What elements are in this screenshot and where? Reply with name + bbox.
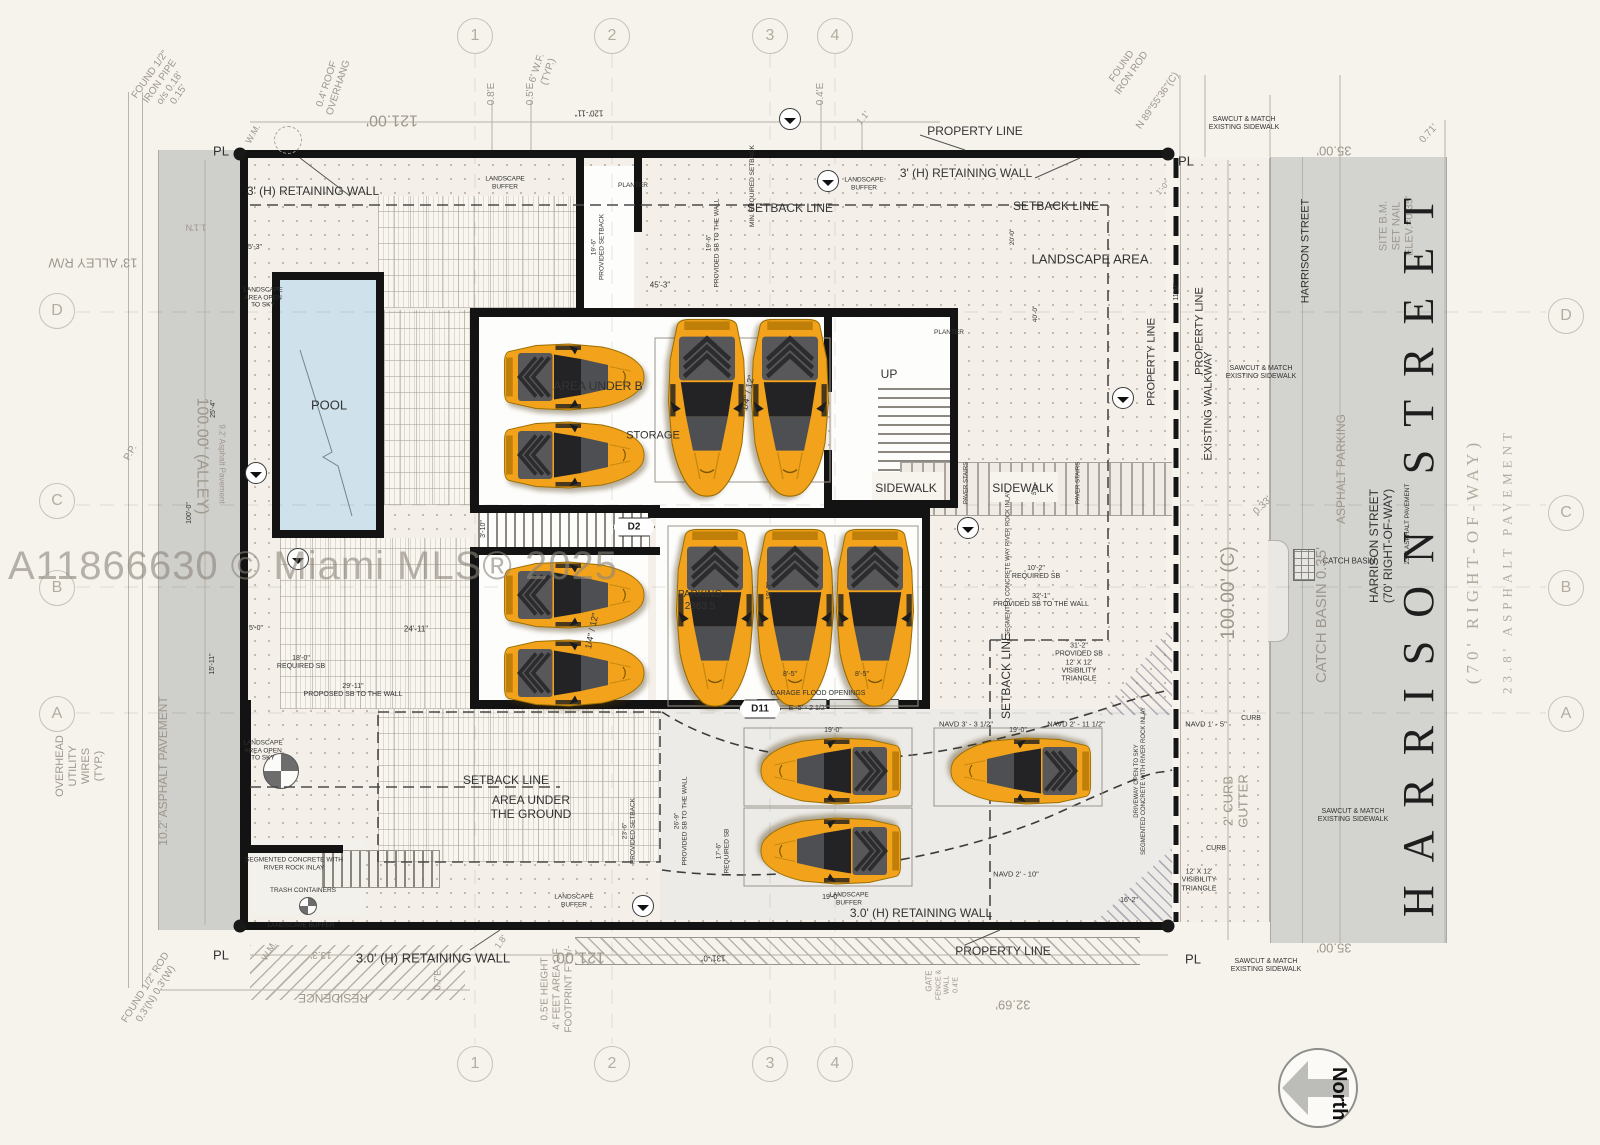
grid-bubble-bottom-3: 3 bbox=[752, 1046, 788, 1082]
label-minreq: MIN. REQUIRED SETBACK bbox=[749, 145, 757, 227]
label-hnote: 0.5'E HEIGHT 4' FEET AREA OF FOOTPRINT F… bbox=[539, 945, 574, 1032]
label-parking: PARKING 2383.5 bbox=[678, 589, 722, 613]
sports-car-icon bbox=[948, 735, 1098, 807]
grid-bubble-right-C: C bbox=[1548, 495, 1584, 531]
grid-bubble-left-C: C bbox=[39, 483, 75, 519]
catch-basin-icon bbox=[1293, 549, 1315, 581]
north-arrow-head-icon bbox=[1282, 1061, 1308, 1115]
label-gate: GATE bbox=[924, 970, 933, 991]
label-drvnote: DRIVEWAY OPEN TO SKY SEGMENTED CONCRETE … bbox=[1134, 707, 1148, 855]
sports-car-icon bbox=[497, 419, 647, 491]
grid-bubble-top-3: 3 bbox=[752, 18, 788, 54]
label-d453: 45'-3" bbox=[650, 280, 670, 289]
pool-wall-right bbox=[376, 272, 384, 538]
label-rod-bl: FOUND 1/2" ROD 0.3'(N) 0.3'(W) bbox=[120, 950, 183, 1031]
label-catch-big: CATCH BASIN 0.35' bbox=[1313, 547, 1331, 683]
label-navd3: NAVD 2' - 10" bbox=[993, 871, 1039, 880]
paver-zone-left bbox=[384, 310, 470, 505]
label-d85b: 8'-5" bbox=[855, 671, 869, 679]
building-wall-left-upper bbox=[470, 308, 479, 505]
entry-wall-horizontal bbox=[243, 845, 343, 853]
label-d100ft: 100'-0" bbox=[186, 502, 194, 524]
label-d102: 10'-2" REQUIRED SB bbox=[1012, 565, 1060, 582]
label-d254: 25'-4" bbox=[210, 400, 218, 418]
curb-bulb bbox=[1268, 540, 1289, 642]
alley-curb-line bbox=[128, 92, 129, 988]
label-d2911: 29'-11" PROPOSED SB TO THE WALL bbox=[304, 683, 403, 700]
label-d310: 3'-10" bbox=[480, 520, 488, 538]
label-navd1: NAVD 3' - 3 1/2" bbox=[939, 721, 993, 730]
property-corner-ne bbox=[1162, 148, 1175, 161]
label-lb1: LANDSCAPE BUFFER bbox=[485, 175, 524, 190]
label-sbv: SETBACK LINE bbox=[999, 633, 1013, 719]
label-d400: 40'-0" bbox=[1032, 306, 1040, 323]
detail-tag-d2: D2 bbox=[613, 518, 655, 537]
label-prov2: 19'-6" PROVIDED SB TO THE WALL bbox=[705, 199, 720, 288]
label-pool: POOL bbox=[311, 397, 347, 412]
label-sbt1: SETBACK LINE bbox=[747, 201, 833, 215]
label-pl-v1: PROPERTY LINE bbox=[1146, 318, 1159, 406]
property-corner-se bbox=[1162, 920, 1175, 933]
label-d190v: 19'-0" bbox=[766, 582, 774, 600]
label-curb2: CURB bbox=[1206, 845, 1226, 853]
label-aug: AREA UNDER THE GROUND bbox=[491, 793, 572, 821]
pool-wall-left bbox=[272, 272, 280, 538]
building-wall-right-lower bbox=[922, 508, 930, 708]
entry-stub-wall-right bbox=[634, 158, 642, 232]
label-pltr2: PLANTER bbox=[934, 329, 964, 337]
north-label: North bbox=[1310, 1067, 1350, 1107]
label-prop-top: PROPERTY LINE bbox=[927, 124, 1023, 138]
sports-car-icon bbox=[753, 520, 837, 710]
label-storage: STORAGE bbox=[626, 430, 680, 443]
label-d35b: 35.00' bbox=[1316, 940, 1351, 955]
label-d3269: 32.69' bbox=[995, 997, 1030, 1012]
grid-bubble-bottom-1: 1 bbox=[457, 1046, 493, 1082]
grid-bubble-bottom-2: 2 bbox=[594, 1046, 630, 1082]
label-sbt2: SETBACK LINE bbox=[1013, 199, 1099, 213]
property-corner-sw bbox=[234, 920, 247, 933]
label-lb2: LANDSCAPE BUFFER bbox=[844, 176, 883, 191]
label-gfo: GARAGE FLOOD OPENINGS bbox=[771, 690, 866, 698]
label-residence: RESIDENCE bbox=[298, 991, 368, 1005]
label-lb4: LANDSCAPE BUFFER bbox=[554, 893, 593, 908]
label-e04: 0.4'E bbox=[815, 83, 827, 105]
label-swk1: SIDEWALK bbox=[875, 481, 937, 495]
label-d07e: 0.7'E bbox=[433, 970, 444, 990]
label-e05: 0.5'E bbox=[525, 83, 537, 105]
label-sawcut1: SAWCUT & MATCH EXISTING SIDEWALK bbox=[1209, 116, 1280, 133]
label-fence: FENCE & WALL 0.4'E bbox=[936, 970, 961, 1000]
label-lao2: LANDSCAPE AREA OPEN TO SKY bbox=[243, 740, 282, 763]
label-prop-bot: PROPERTY LINE bbox=[955, 944, 1051, 958]
label-aub: AREA UNDER B bbox=[553, 379, 642, 393]
label-lb3: LANDSCAPE BUFFER bbox=[829, 891, 868, 906]
label-prov4: 26'-9" PROVIDED SB TO THE WALL bbox=[673, 777, 688, 866]
label-up: UP bbox=[881, 367, 898, 381]
label-d11n: 1.1'N bbox=[186, 222, 207, 233]
label-ret-tl: 3' (H) RETAINING WALL bbox=[247, 184, 379, 198]
grid-bubble-right-A: A bbox=[1548, 696, 1584, 732]
label-d133: 13.3' bbox=[310, 948, 331, 960]
label-pl-tr: PL bbox=[1178, 153, 1194, 168]
label-d35t: 35.00' bbox=[1316, 143, 1351, 158]
label-curbgut: 2' CURB GUTTER bbox=[1221, 774, 1252, 827]
label-rod-tr: FOUND IRON ROD bbox=[1103, 43, 1151, 97]
label-d162: 16'-2" bbox=[1120, 897, 1138, 905]
sports-car-icon bbox=[748, 310, 832, 500]
label-d18r: 18'-0" REQUIRED SB bbox=[277, 655, 325, 672]
label-sawcut3: SAWCUT & MATCH EXISTING SIDEWALK bbox=[1318, 808, 1389, 825]
section-marker-icon bbox=[779, 108, 801, 130]
label-hsst-top: HARRISON STREET bbox=[1300, 199, 1313, 304]
label-pp: P.P. bbox=[122, 443, 140, 463]
label-row70: (70' RIGHT-OF-WAY) bbox=[1463, 438, 1483, 684]
tree-icon-small bbox=[299, 897, 317, 915]
label-asparkg: ASPHALT PARKING bbox=[1334, 414, 1348, 524]
label-wm-tl: W.M. bbox=[243, 122, 262, 145]
pool-wall-bottom bbox=[272, 530, 384, 538]
property-corner-nw bbox=[234, 148, 247, 161]
sports-car-icon bbox=[673, 520, 757, 710]
sports-car-icon bbox=[758, 815, 908, 887]
grid-bubble-top-4: 4 bbox=[817, 18, 853, 54]
grid-bubble-top-1: 1 bbox=[457, 18, 493, 54]
entry-stub-wall-left bbox=[576, 158, 584, 310]
sports-car-icon bbox=[833, 520, 917, 710]
label-retb2: 3.0' (H) RETAINING WALL bbox=[356, 950, 510, 965]
grid-bubble-bottom-4: 4 bbox=[817, 1046, 853, 1082]
label-navd4: NAVD 1' - 5" bbox=[1185, 721, 1226, 730]
property-wall-top bbox=[240, 150, 1172, 158]
label-alley100: 100.00' (ALLEY) bbox=[192, 398, 211, 515]
label-ohw: OVERHEAD UTILITY WIRES (TYP.) bbox=[54, 735, 106, 797]
label-d121t: 121.00' bbox=[366, 110, 418, 129]
label-d312: 31'-2" PROVIDED SB 12' X 12' VISIBILITY … bbox=[1055, 642, 1103, 683]
label-d190a: 19'-0" bbox=[824, 727, 842, 735]
label-found-pipe: FOUND 1/2" IRON PIPE o/s 0.18' 0.15' bbox=[130, 49, 201, 122]
label-pltr1: PLANTER bbox=[618, 182, 648, 190]
label-asp238: 23.8' ASPHALT PAVEMENT bbox=[1499, 428, 1514, 694]
label-trash: TRASH CONTAINERS bbox=[270, 887, 336, 895]
label-alley-rw: 13' ALLEY R/W bbox=[49, 255, 138, 270]
grid-bubble-left-A: A bbox=[39, 696, 75, 732]
corridor-wall-top bbox=[470, 505, 660, 513]
alley-pavement bbox=[158, 150, 242, 930]
label-swk2: SIDEWALK bbox=[992, 481, 1054, 495]
label-lsarea: LANDSCAPE AREA bbox=[1031, 251, 1148, 266]
grid-bubble-right-D: D bbox=[1548, 298, 1584, 334]
label-d11e: 1.1' bbox=[854, 109, 871, 127]
label-d53: 5'-3" bbox=[248, 244, 262, 252]
label-pl-tl: PL bbox=[213, 143, 229, 158]
label-req2: 17'-6" REQUIRED SB bbox=[715, 829, 730, 874]
label-d1511: 15'-11" bbox=[209, 653, 217, 674]
label-sawcut4: SAWCUT & MATCH EXISTING SIDEWALK bbox=[1231, 958, 1302, 975]
label-d2411: 24'-11" bbox=[404, 624, 428, 633]
label-sbl: SETBACK LINE bbox=[463, 773, 549, 787]
grid-bubble-right-B: B bbox=[1548, 570, 1584, 606]
label-lao1: LANDSCAPE AREA OPEN TO SKY bbox=[243, 287, 282, 310]
property-wall-bottom bbox=[240, 922, 1172, 930]
detail-tag-d11: D11 bbox=[739, 700, 781, 719]
label-seg2: SEGMENTED CONCRETE WITH RIVER ROCK INLAY bbox=[245, 856, 343, 871]
label-prov1: 19'-6" PROVIDED SETBACK bbox=[590, 214, 605, 280]
label-pl-bl: PL bbox=[213, 947, 229, 962]
label-navd2: NAVD 2' - 11 1/2" bbox=[1047, 721, 1105, 730]
garage-divider-wall bbox=[648, 508, 930, 518]
label-pl-br: PL bbox=[1185, 951, 1201, 966]
label-d190b: 19'-0" bbox=[1009, 727, 1027, 735]
sports-car-icon bbox=[665, 310, 749, 500]
label-vis2: 12' X 12' VISIBILITY TRIANGLE bbox=[1181, 869, 1216, 894]
label-roof-ovh: 0.4' ROOF OVERHANG bbox=[313, 55, 353, 117]
grid-bubble-left-D: D bbox=[39, 293, 75, 329]
label-asp102: 10.2' ASPHALT PAVEMENT bbox=[156, 696, 170, 845]
label-prov3: 23'-6" PROVIDED SETBACK bbox=[621, 798, 636, 864]
label-d131: 131'-0" bbox=[701, 953, 726, 962]
label-curb1: CURB bbox=[1241, 715, 1261, 723]
label-c100: 100.00' (C) bbox=[1218, 546, 1240, 639]
entry-wall-vertical bbox=[243, 700, 251, 850]
site-plan-canvas: FOUND 1/2" IRON PIPE o/s 0.18' 0.15'W.M.… bbox=[0, 0, 1600, 1145]
sports-car-icon bbox=[497, 341, 647, 413]
label-lb5: LANDSCAPE BUFFER bbox=[267, 922, 334, 930]
label-exwalk: EXISTING WALKWAY bbox=[1203, 352, 1216, 461]
section-marker-icon bbox=[817, 170, 839, 192]
label-pvs2: PAVER STAIRS bbox=[1075, 462, 1082, 504]
stair-zone-wall-right bbox=[950, 308, 958, 508]
label-d110: 11'-0" bbox=[1173, 283, 1181, 300]
label-ret-tr: 3' (H) RETAINING WALL bbox=[900, 166, 1032, 180]
grid-bubble-top-2: 2 bbox=[594, 18, 630, 54]
label-d18: 1.8' bbox=[493, 933, 510, 951]
label-d200: 20'-0" bbox=[1009, 229, 1017, 246]
label-hs-big: HARRISON STREET bbox=[1393, 175, 1445, 917]
shrub-icon bbox=[274, 126, 302, 154]
alley-curb-line2 bbox=[142, 92, 143, 988]
label-d85a: 8'-5" bbox=[783, 671, 797, 679]
sports-car-icon bbox=[758, 735, 908, 807]
section-marker-icon bbox=[957, 517, 979, 539]
label-e08: 0.8'E bbox=[486, 83, 498, 105]
pool-wall-top bbox=[272, 272, 384, 280]
section-marker-icon bbox=[1112, 387, 1134, 409]
label-d321: 32'-1" PROVIDED SB TO THE WALL bbox=[993, 593, 1089, 610]
label-pvs1: PAVER STAIRS bbox=[963, 462, 970, 504]
label-segway: SEGMENTED CONCRETE WAY RIVER ROCK INLAY bbox=[1005, 490, 1012, 635]
label-retb1: 3.0' (H) RETAINING WALL bbox=[850, 906, 992, 920]
label-d50b: 5'-0" bbox=[249, 625, 263, 633]
stair-zone-wall-bottom bbox=[824, 500, 958, 508]
neighbor-fence-strip bbox=[575, 937, 1140, 965]
label-d12011: 120'-11" bbox=[575, 108, 604, 117]
sports-car-icon bbox=[497, 637, 647, 709]
label-bearing: N 89°55'36"(C) bbox=[1134, 70, 1182, 131]
label-hs-med: HARRISON STREET (70' RIGHT-OF-WAY) bbox=[1367, 489, 1395, 603]
label-alley-asp: 9.2' Asphalt Pavement bbox=[217, 424, 226, 503]
label-sawcut2: SAWCUT & MATCH EXISTING SIDEWALK bbox=[1226, 365, 1297, 382]
section-marker-icon bbox=[632, 895, 654, 917]
label-d11txt: E -5' - 2 1/2" bbox=[789, 705, 827, 713]
section-marker-icon bbox=[245, 462, 267, 484]
watermark: A11866630 © Miami MLS® 2025 bbox=[8, 543, 618, 590]
north-arrow: North bbox=[1278, 1048, 1358, 1128]
label-d071: 0.71' bbox=[1417, 122, 1440, 146]
